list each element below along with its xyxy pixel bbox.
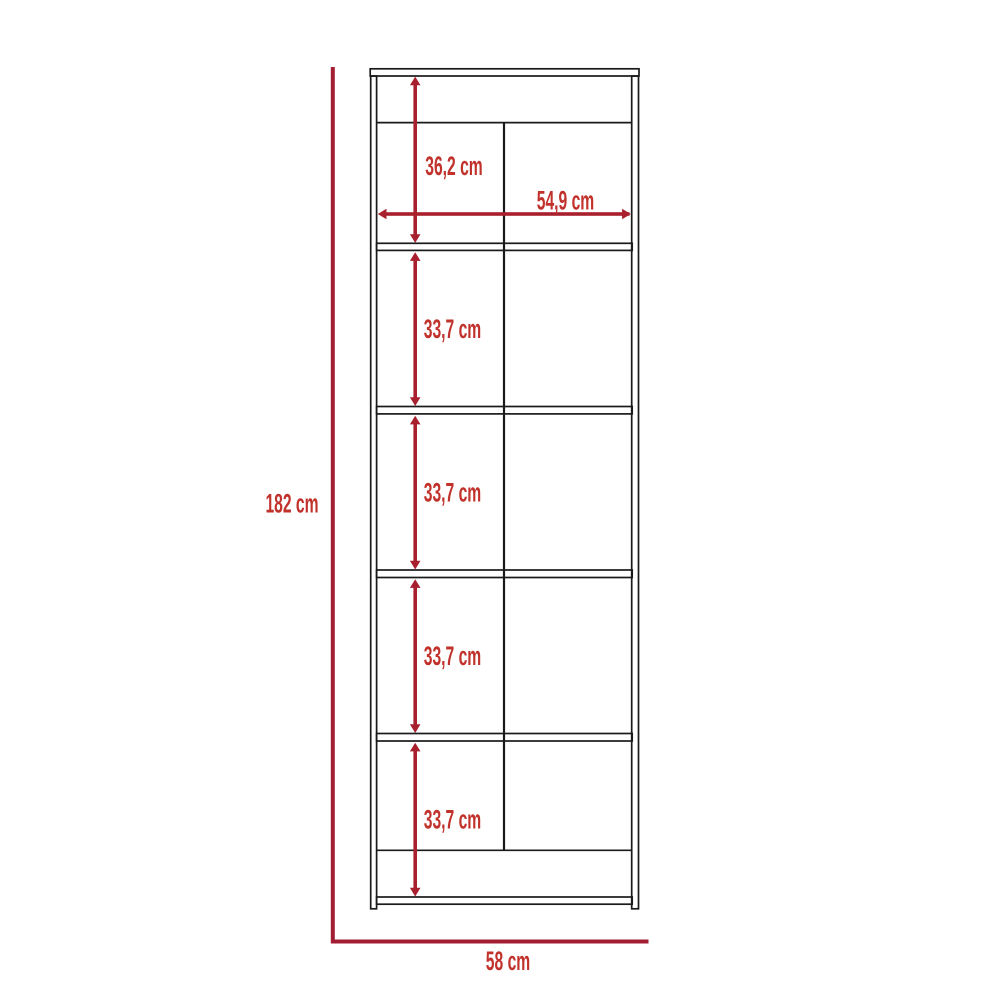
svg-text:33,7 cm: 33,7 cm (424, 804, 481, 835)
svg-text:182 cm: 182 cm (265, 488, 318, 519)
svg-text:36,2 cm: 36,2 cm (425, 151, 482, 182)
svg-text:33,7 cm: 33,7 cm (424, 641, 481, 672)
svg-text:33,7 cm: 33,7 cm (424, 314, 481, 345)
svg-text:58 cm: 58 cm (486, 946, 530, 977)
svg-text:33,7 cm: 33,7 cm (424, 477, 481, 508)
svg-text:54,9 cm: 54,9 cm (537, 185, 594, 216)
